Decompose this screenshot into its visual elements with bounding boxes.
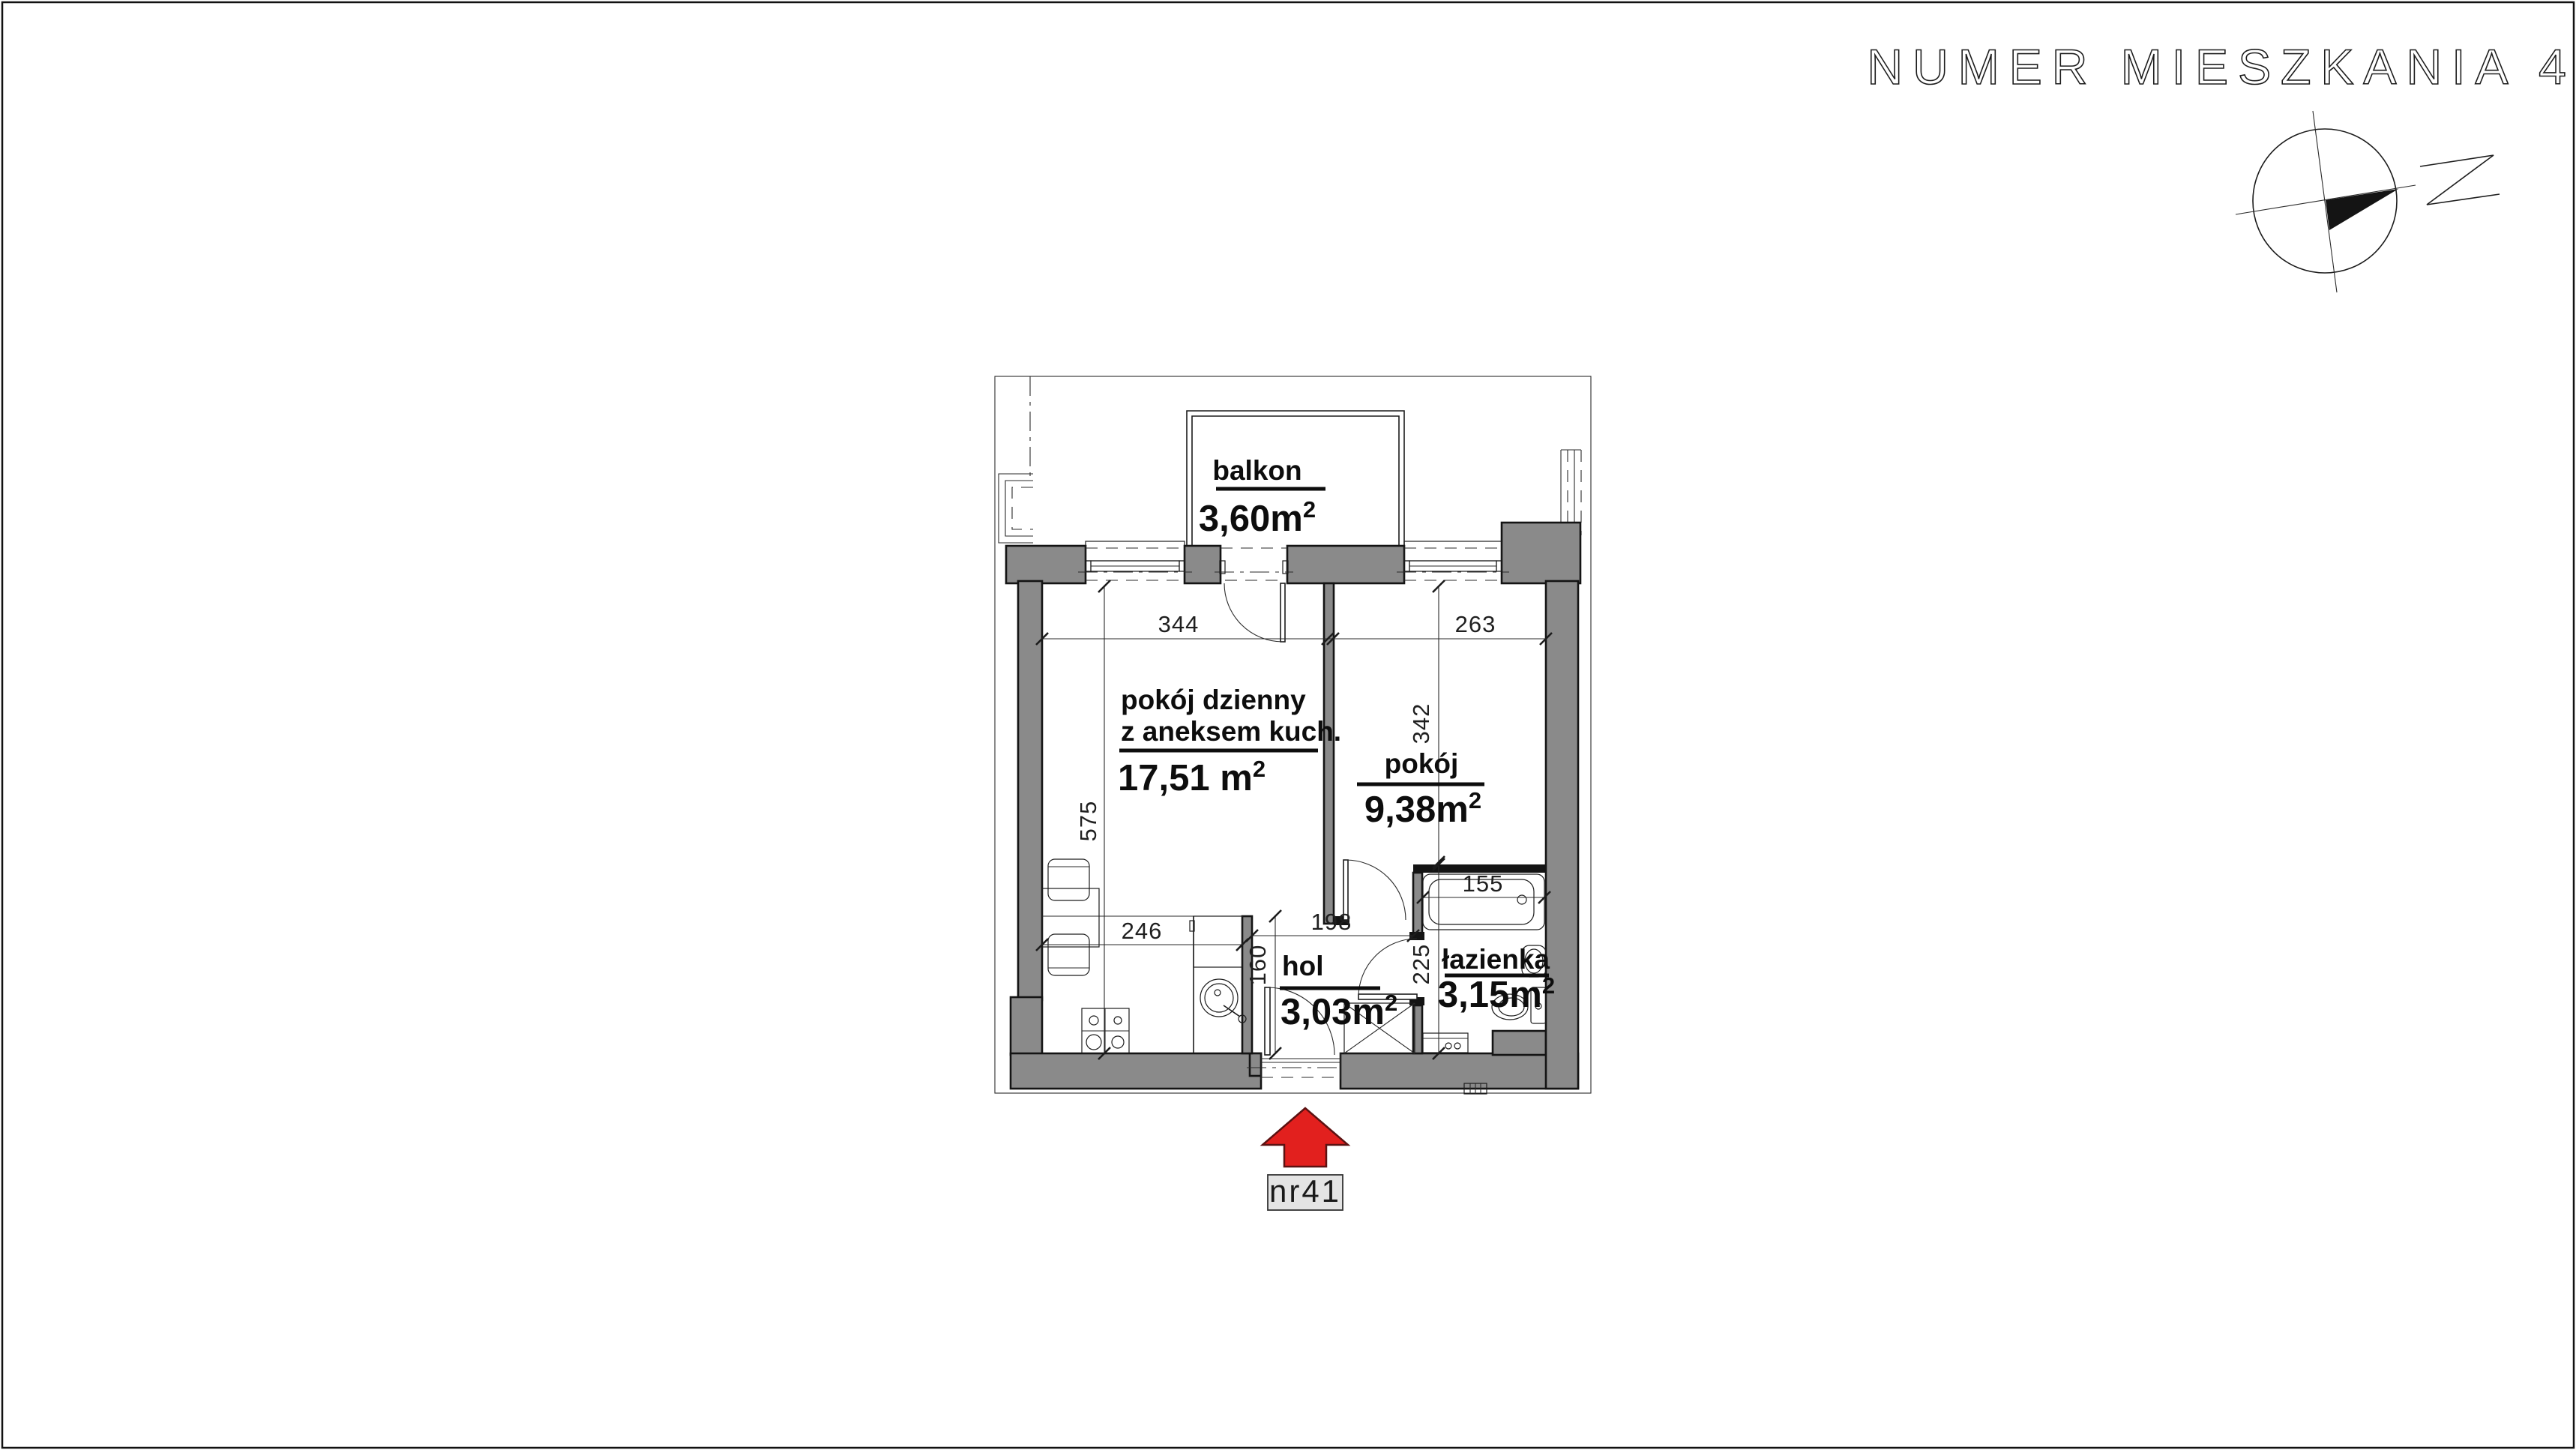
area-living: 17,51 m2 xyxy=(1118,756,1266,798)
wall-top-b xyxy=(1185,546,1221,583)
burner xyxy=(1086,1035,1101,1050)
label-balcony: balkon xyxy=(1212,455,1301,486)
wall-right xyxy=(1546,581,1578,1089)
washer xyxy=(1423,1033,1468,1053)
compass-icon xyxy=(2236,111,2500,292)
balcony-door xyxy=(1215,548,1293,642)
chair xyxy=(1048,934,1089,975)
burner xyxy=(1114,1017,1122,1024)
balcony-door-swing xyxy=(1224,583,1283,642)
entrance-marker: nr41 xyxy=(1263,1108,1348,1210)
bathtub-drain xyxy=(1517,895,1526,904)
dim-bedroom-depth: 342 xyxy=(1408,703,1434,744)
burner xyxy=(1089,1016,1098,1025)
area-bedroom: 9,38m2 xyxy=(1364,787,1481,830)
area-balcony: 3,60m2 xyxy=(1199,496,1316,539)
entrance-arrow xyxy=(1263,1108,1348,1167)
area-bathroom: 3,15m2 xyxy=(1438,972,1555,1015)
wall-bottom-left xyxy=(1011,1053,1261,1089)
window-living xyxy=(1078,541,1192,580)
wall-top-c xyxy=(1287,546,1404,583)
floor-plan-sheet: NUMER MIESZKANIA 41 xyxy=(0,0,2576,1450)
wall-top-right-pier xyxy=(1502,523,1580,583)
kitchen-fixtures xyxy=(1042,859,1246,1053)
label-bedroom: pokój xyxy=(1385,748,1459,779)
dim-kitchen-run: 246 xyxy=(1122,918,1163,944)
dim-living-width: 344 xyxy=(1158,611,1200,637)
dim-bathtub-width: 155 xyxy=(1463,870,1504,897)
dim-bedroom-width: 263 xyxy=(1455,611,1496,637)
dim-living-depth: 575 xyxy=(1075,801,1101,842)
compass-direction-letter xyxy=(2420,155,2500,205)
fridge xyxy=(1194,916,1242,967)
neighbour-window-left xyxy=(999,474,1033,543)
dim-bathroom-depth: 225 xyxy=(1408,944,1434,985)
balcony-door-leaf xyxy=(1281,583,1285,642)
dim-hall-depth: 160 xyxy=(1245,945,1271,986)
wall-bottom-right xyxy=(1340,1053,1578,1089)
label-bathroom: łazienka xyxy=(1442,944,1550,975)
page-title: NUMER MIESZKANIA 41 xyxy=(1867,39,2576,94)
wall-left-foot xyxy=(1011,997,1042,1055)
wall-left xyxy=(1018,581,1042,1000)
dim-hall-width: 198 xyxy=(1311,909,1352,935)
label-living-2: z aneksem kuch. xyxy=(1121,716,1341,747)
wall-bath-corner xyxy=(1493,1031,1546,1055)
area-hall: 3,03m2 xyxy=(1281,990,1397,1032)
wall-bath-left-upper xyxy=(1413,873,1422,939)
compass-needle xyxy=(2326,189,2398,230)
label-living-1: pokój dzienny xyxy=(1121,685,1306,715)
window-bedroom xyxy=(1397,541,1509,580)
chair xyxy=(1048,859,1089,900)
wall-bottom-jamb xyxy=(1250,1053,1261,1076)
burner xyxy=(1112,1036,1124,1048)
label-hall: hol xyxy=(1282,951,1323,981)
bedroom-door xyxy=(1343,860,1406,920)
entrance-label: nr41 xyxy=(1269,1173,1341,1209)
table xyxy=(1042,888,1099,947)
wall-top-a xyxy=(1006,546,1086,583)
